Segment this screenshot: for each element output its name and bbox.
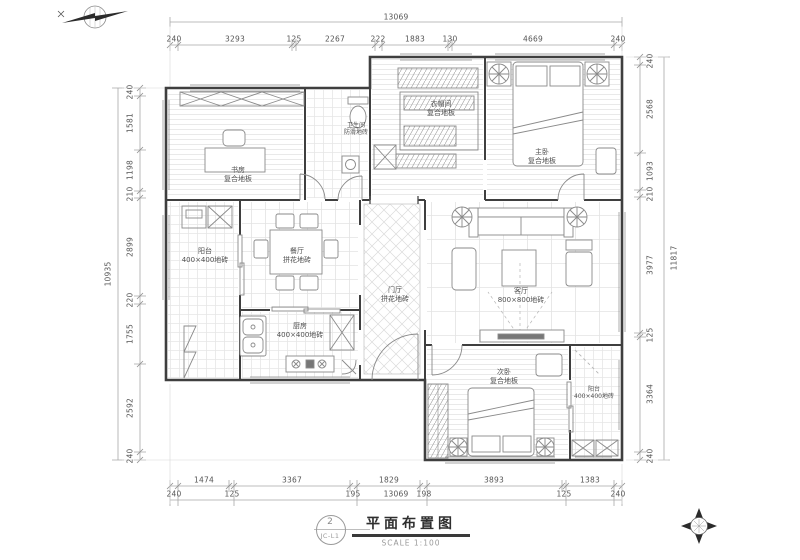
- dim-top-3: 2267: [325, 35, 345, 44]
- dim-bottom-outer-2: 195: [346, 490, 361, 499]
- dim-bottom-inner-1: 3367: [282, 476, 302, 485]
- dim-left-2: 1198: [126, 160, 135, 180]
- room-floor: 400×400地砖: [182, 256, 229, 265]
- dim-left-4: 2899: [126, 237, 135, 257]
- room-name: 餐厅: [283, 247, 311, 256]
- dim-top-8: 240: [611, 35, 626, 44]
- dim-left-8: 240: [126, 449, 135, 464]
- floor-plan-drawing: [0, 0, 800, 560]
- dim-bottom-outer-0: 240: [167, 490, 182, 499]
- room-floor: 防滑地砖: [344, 129, 368, 136]
- room-name: 衣帽间: [427, 100, 455, 109]
- dim-right-6: 3364: [646, 384, 655, 404]
- dim-left-5: 220: [126, 293, 135, 308]
- room-floor: 400×400地砖: [574, 393, 614, 400]
- scale-label: SCALE 1:100: [381, 539, 440, 548]
- dim-left-total: 10935: [104, 262, 113, 287]
- room-label-bedroom2: 次卧 复合地板: [490, 368, 518, 385]
- dim-left-6: 1755: [126, 324, 135, 344]
- room-name: 厨房: [277, 322, 324, 331]
- room-name: 次卧: [490, 368, 518, 377]
- dim-right-5: 125: [646, 328, 655, 343]
- room-label-entry: 门厅 拼花地砖: [381, 286, 409, 303]
- floor-plan-page: { "meta": { "title": "平面布置图", "scale": "…: [0, 0, 800, 560]
- room-floor: 复合地板: [528, 157, 556, 166]
- room-label-balcony-br: 阳台 400×400地砖: [574, 386, 614, 400]
- room-label-master: 主卧 复合地板: [528, 148, 556, 165]
- dim-top-1: 3293: [225, 35, 245, 44]
- room-floor: 复合地板: [490, 377, 518, 386]
- room-label-balcony-left: 阳台 400×400地砖: [182, 247, 229, 264]
- dim-right-3: 210: [646, 187, 655, 202]
- room-label-dining: 餐厅 拼花地砖: [283, 247, 311, 264]
- dim-bottom-outer-5: 240: [611, 490, 626, 499]
- dim-bottom-inner-0: 1474: [194, 476, 214, 485]
- dim-bottom-total: 13069: [384, 490, 409, 499]
- north-arrow-icon: [58, 6, 128, 28]
- dim-left-1: 1581: [126, 113, 135, 133]
- dim-right-7: 240: [646, 449, 655, 464]
- dim-bottom-outer-3: 198: [417, 490, 432, 499]
- room-label-living: 客厅 800×800地砖: [498, 287, 545, 304]
- room-name: 主卧: [528, 148, 556, 157]
- dim-left-7: 2592: [126, 398, 135, 418]
- room-label-bath: 卫生间 防滑地砖: [344, 122, 368, 136]
- title-underline: [352, 534, 470, 537]
- room-floor: 复合地板: [224, 175, 252, 184]
- dim-bottom-outer-1: 125: [225, 490, 240, 499]
- dim-right-total: 11817: [670, 246, 679, 271]
- room-floor: 800×800地砖: [498, 296, 545, 305]
- compass-icon: [681, 508, 717, 544]
- room-label-study: 书房 复合地板: [224, 166, 252, 183]
- dim-left-0: 240: [126, 85, 135, 100]
- room-name: 阳台: [574, 386, 614, 393]
- dim-left-3: 210: [126, 187, 135, 202]
- room-floor: 拼花地砖: [381, 295, 409, 304]
- dim-bottom-outer-4: 125: [557, 490, 572, 499]
- room-floor: 复合地板: [427, 109, 455, 118]
- drawing-title: 平面布置图: [366, 513, 456, 533]
- sheet-number: 2: [327, 517, 333, 527]
- room-floor: 拼花地砖: [283, 256, 311, 265]
- room-floor: 400×400地砖: [277, 331, 324, 340]
- dim-bottom-inner-2: 1829: [379, 476, 399, 485]
- dim-bottom-inner-4: 1383: [580, 476, 600, 485]
- room-name: 书房: [224, 166, 252, 175]
- room-name: 阳台: [182, 247, 229, 256]
- room-name: 门厅: [381, 286, 409, 295]
- dim-right-4: 3977: [646, 255, 655, 275]
- dim-top-6: 130: [443, 35, 458, 44]
- dim-top-5: 1883: [405, 35, 425, 44]
- room-name: 客厅: [498, 287, 545, 296]
- dim-right-1: 2568: [646, 99, 655, 119]
- room-label-cloak: 衣帽间 复合地板: [427, 100, 455, 117]
- dim-top-0: 240: [167, 35, 182, 44]
- dim-top-total: 13069: [384, 13, 409, 22]
- dim-right-0: 240: [646, 54, 655, 69]
- room-name: 卫生间: [344, 122, 368, 129]
- dim-top-4: 222: [371, 35, 386, 44]
- dim-top-2: 125: [287, 35, 302, 44]
- dim-bottom-inner-3: 3893: [484, 476, 504, 485]
- room-label-kitchen: 厨房 400×400地砖: [277, 322, 324, 339]
- dim-right-2: 1093: [646, 161, 655, 181]
- sheet-code: JC-L1: [320, 532, 339, 540]
- dim-top-7: 4669: [523, 35, 543, 44]
